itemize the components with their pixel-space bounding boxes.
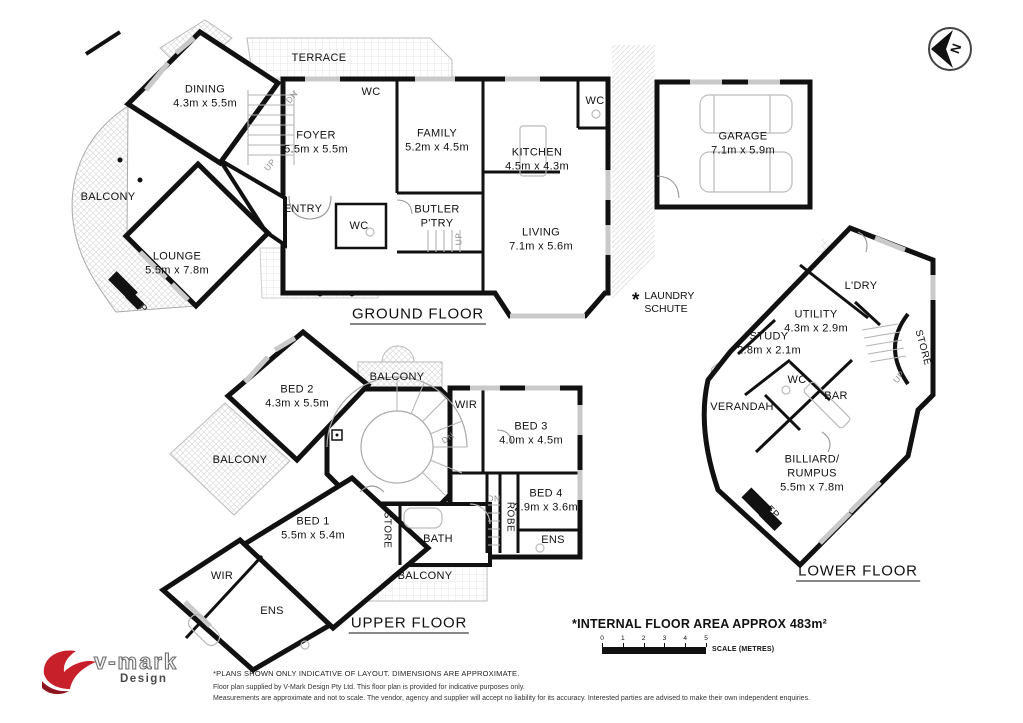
scale-bar-rule <box>602 647 706 654</box>
scale-tick-4: 4 <box>685 643 686 647</box>
label-store-upper: STORE <box>380 512 393 549</box>
label-bath: BATH <box>423 533 453 547</box>
label-bed1: BED 15.5m x 5.4m <box>281 515 345 543</box>
laundry-schute-note: * LAUNDRY SCHUTE <box>632 290 694 316</box>
label-bed3: BED 34.0m x 4.5m <box>499 420 563 448</box>
title-upper-floor: UPPER FLOOR <box>349 615 469 634</box>
label-dn-back: DN <box>487 494 500 505</box>
label-wir-upper-right: WIR <box>455 399 477 413</box>
label-wc-foyer: WC <box>362 86 381 100</box>
label-balcony-upper-top: BALCONY <box>370 371 425 385</box>
title-ground-floor: GROUND FLOOR <box>350 306 486 325</box>
scale-tick-2: 2 <box>644 643 645 647</box>
label-verandah: VERANDAH <box>710 401 774 415</box>
label-bed4: BED 42.9m x 3.6m <box>514 487 578 515</box>
scale-label: SCALE (METRES) <box>712 646 774 653</box>
label-billiard-rumpus: BILLIARD/RUMPUS5.5m x 7.8m <box>780 453 844 494</box>
lower-floor-plan <box>704 228 933 565</box>
scale-bar: 012345 <box>602 634 722 654</box>
label-wc-kitchen: WC <box>586 95 605 109</box>
laundry-note-line2: SCHUTE <box>644 303 694 316</box>
label-balcony-ground: BALCONY <box>81 191 136 205</box>
scale-ticks: 012345 <box>602 634 706 647</box>
label-dining: DINING4.3m x 5.5m <box>173 83 237 111</box>
label-wc-entry: WC <box>350 220 369 234</box>
label-kitchen: KITCHEN4.5m x 4.3m <box>505 146 569 174</box>
floor-plan-drawing <box>0 0 1023 723</box>
label-entry: ENTRY <box>284 203 323 217</box>
title-lower-floor: LOWER FLOOR <box>796 563 920 582</box>
disclaimer-line-1: *PLANS SHOWN ONLY INDICATIVE OF LAYOUT. … <box>213 669 810 678</box>
label-lounge: LOUNGE5.5m x 7.8m <box>145 250 209 278</box>
logo-brand-text: v-mark <box>94 649 178 675</box>
floor-plan-canvas: TERRACEDINING4.3m x 5.5mBALCONYLOUNGE5.5… <box>0 0 1023 723</box>
label-ens-upper-left: ENS <box>260 605 284 619</box>
label-wir-upper-left: WIR <box>211 570 233 584</box>
label-wc-lower: WC <box>788 374 807 388</box>
label-balcony-upper-bottom: BALCONY <box>398 570 453 584</box>
label-bed2: BED 24.3m x 5.5m <box>265 383 329 411</box>
disclaimer-footer: *PLANS SHOWN ONLY INDICATIVE OF LAYOUT. … <box>213 669 810 706</box>
label-terrace: TERRACE <box>292 52 347 66</box>
label-up-butler: UP <box>454 233 465 246</box>
vmark-logo: v-mark Design <box>36 643 226 699</box>
label-ens-upper-right: ENS <box>541 534 565 548</box>
logo-sub-text: Design <box>120 673 167 685</box>
disclaimer-line-3: Measurements are approximate and not to … <box>213 695 810 702</box>
scale-tick-1: 1 <box>623 643 624 647</box>
scale-tick-3: 3 <box>664 643 665 647</box>
asterisk-icon: * <box>632 290 639 316</box>
label-study: STUDY2.8m x 2.1m <box>737 330 801 358</box>
label-butler-pantry: BUTLERP'TRY <box>414 203 459 231</box>
label-ldry: L'DRY <box>845 280 878 294</box>
label-bar: BAR <box>824 390 848 404</box>
label-balcony-upper-left: BALCONY <box>213 454 268 468</box>
internal-floor-area-note: *INTERNAL FLOOR AREA APPROX 483m² <box>572 617 827 631</box>
label-family: FAMILY5.2m x 4.5m <box>405 127 469 155</box>
label-foyer: FOYER5.5m x 5.5m <box>284 129 348 157</box>
label-living: LIVING7.1m x 5.6m <box>509 226 573 254</box>
laundry-note-line1: LAUNDRY <box>644 290 694 303</box>
disclaimer-line-2: Floor plan supplied by V-Mark Design Pty… <box>213 684 810 691</box>
scale-tick-5: 5 <box>706 643 707 647</box>
scale-tick-0: 0 <box>602 643 603 647</box>
label-robe: ROBE <box>503 502 516 532</box>
label-garage: GARAGE7.1m x 5.9m <box>711 130 775 158</box>
